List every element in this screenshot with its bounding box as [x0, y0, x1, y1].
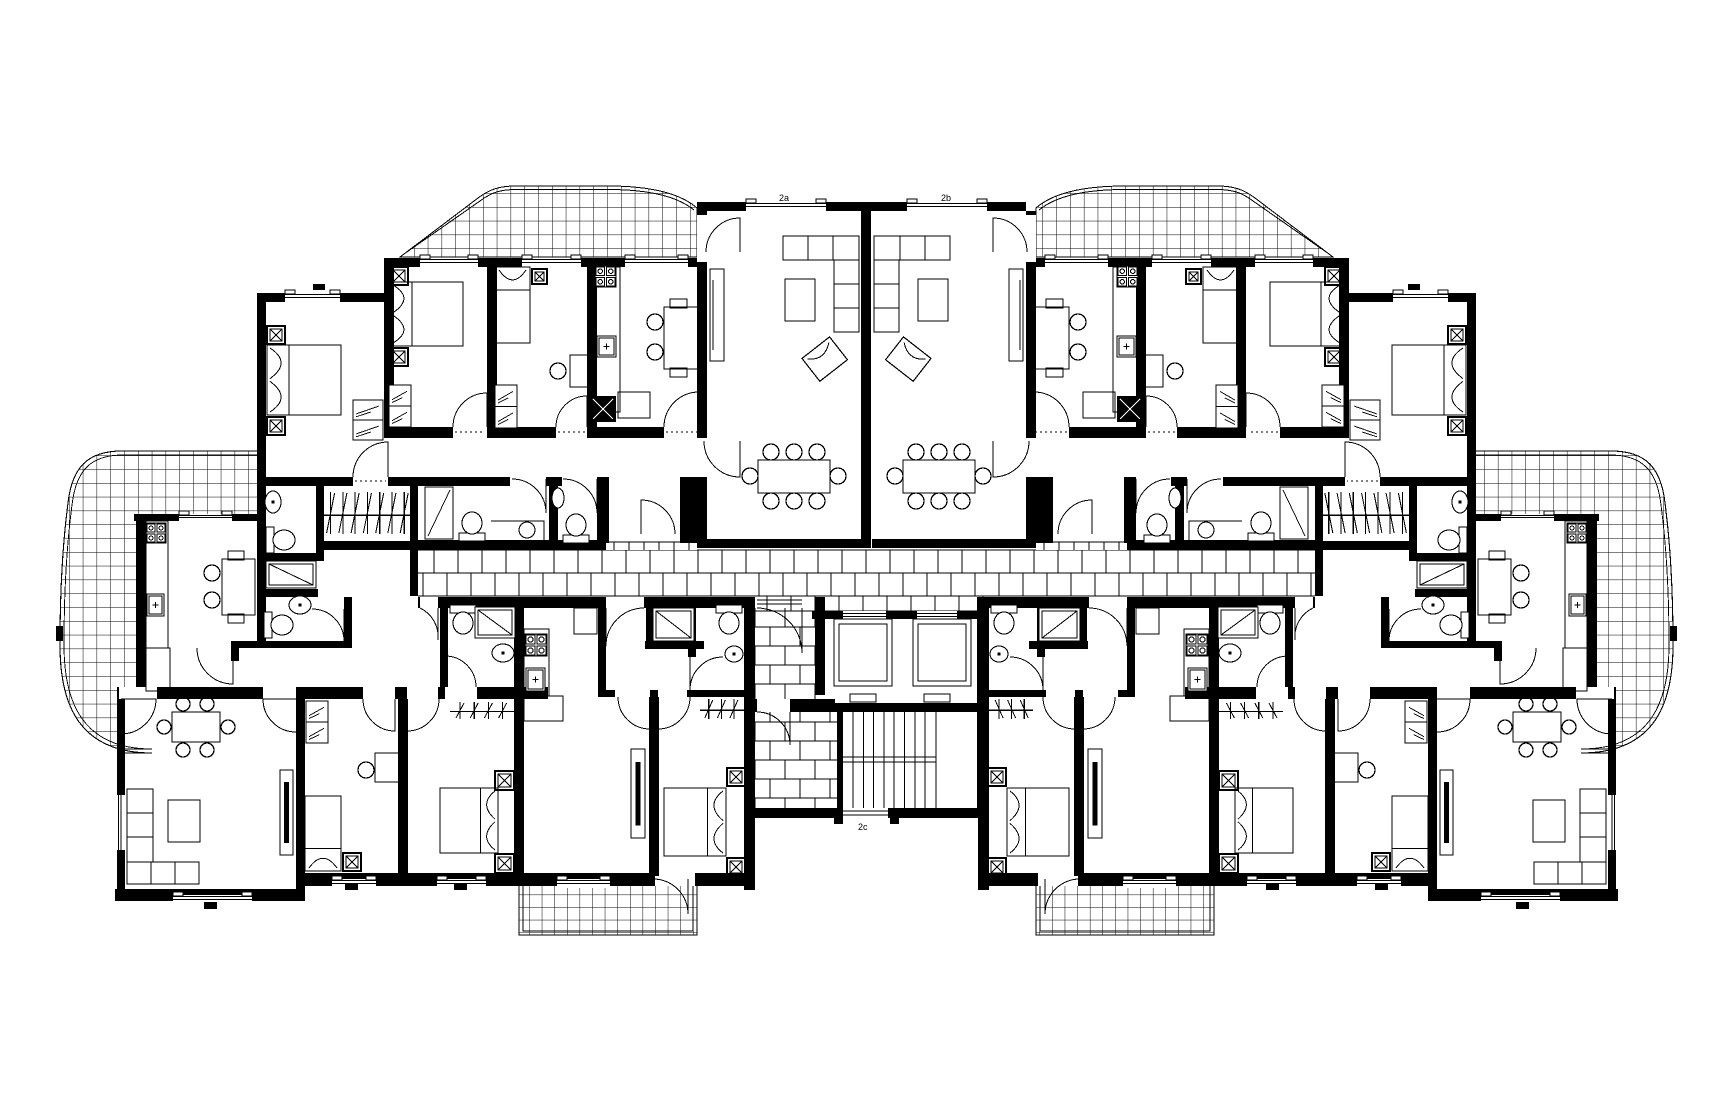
svg-text:2a: 2a: [779, 193, 789, 203]
svg-text:2c: 2c: [858, 822, 868, 832]
svg-text:2b: 2b: [941, 193, 951, 203]
